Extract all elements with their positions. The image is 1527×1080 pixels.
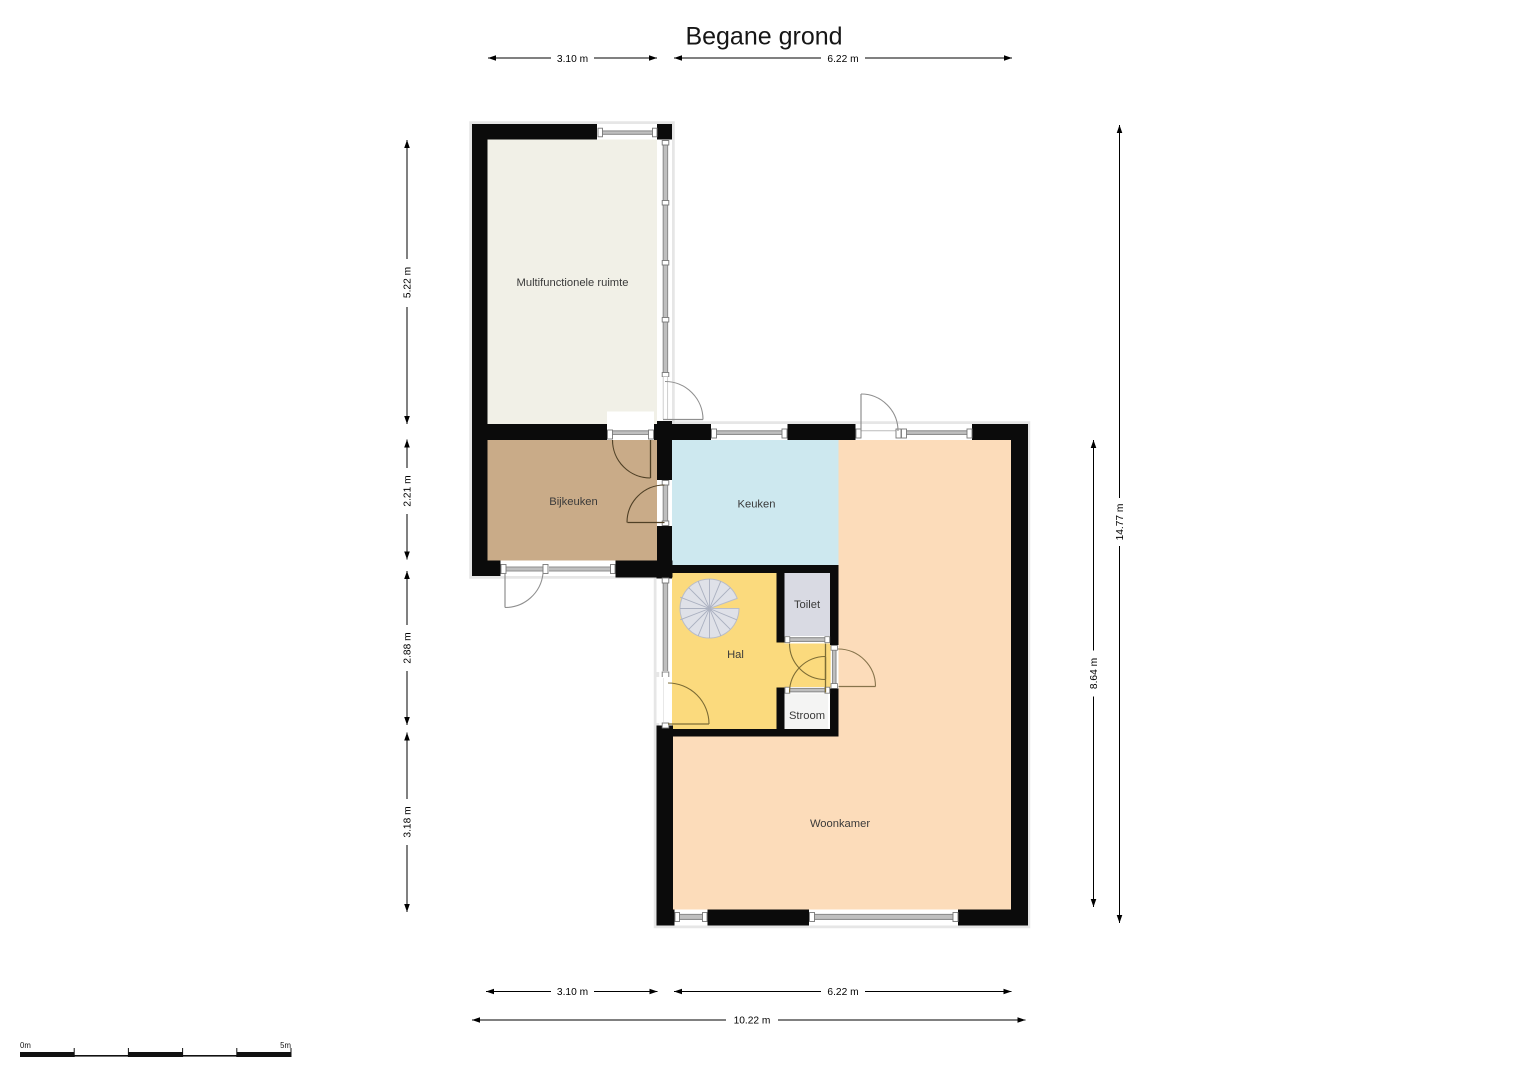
svg-text:14.77 m: 14.77 m — [1115, 504, 1126, 541]
svg-text:2.21 m: 2.21 m — [403, 475, 414, 506]
svg-text:8.64 m: 8.64 m — [1089, 658, 1100, 689]
svg-text:0m: 0m — [20, 1041, 31, 1050]
svg-text:3.18 m: 3.18 m — [403, 806, 414, 837]
svg-text:Begane grond: Begane grond — [685, 23, 842, 51]
svg-text:3.10 m: 3.10 m — [557, 54, 588, 65]
svg-text:Woonkamer: Woonkamer — [810, 818, 870, 830]
svg-text:6.22 m: 6.22 m — [827, 987, 858, 998]
svg-text:2.88 m: 2.88 m — [403, 632, 414, 663]
svg-text:Toilet: Toilet — [794, 599, 821, 611]
svg-text:5.22 m: 5.22 m — [403, 267, 414, 298]
svg-text:Stroom: Stroom — [789, 710, 825, 722]
svg-text:5m: 5m — [280, 1041, 291, 1050]
svg-text:Keuken: Keuken — [738, 499, 776, 511]
svg-text:Hal: Hal — [727, 649, 744, 661]
svg-text:Bijkeuken: Bijkeuken — [549, 496, 598, 508]
svg-text:10.22 m: 10.22 m — [734, 1016, 771, 1027]
svg-text:6.22 m: 6.22 m — [827, 54, 858, 65]
svg-text:3.10 m: 3.10 m — [557, 987, 588, 998]
svg-text:Multifunctionele ruimte: Multifunctionele ruimte — [517, 277, 629, 289]
